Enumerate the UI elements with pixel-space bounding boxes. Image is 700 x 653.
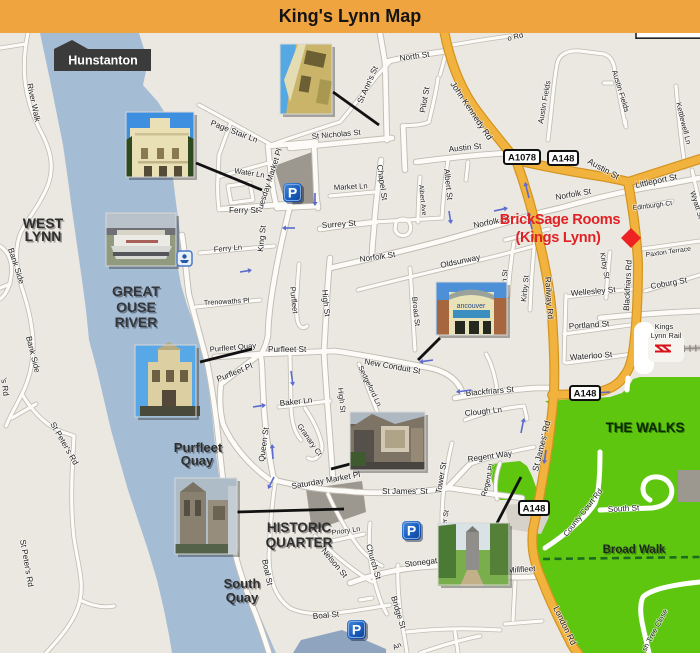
svg-text:'s Rd: 's Rd	[0, 377, 11, 397]
svg-text:QUARTER: QUARTER	[266, 535, 333, 550]
svg-text:Market Ln: Market Ln	[334, 181, 368, 192]
svg-text:Broad Walk: Broad Walk	[603, 544, 666, 556]
svg-text:St James' St: St James' St	[382, 487, 428, 496]
svg-text:Ferry St: Ferry St	[229, 206, 259, 215]
svg-text:Kings: Kings	[655, 322, 674, 331]
svg-text:BrickSage Rooms: BrickSage Rooms	[500, 212, 621, 228]
svg-text:RIVER: RIVER	[115, 314, 158, 330]
svg-text:A148: A148	[574, 388, 597, 399]
svg-text:P: P	[407, 523, 416, 539]
svg-text:LYNN: LYNN	[25, 228, 62, 244]
svg-text:P: P	[352, 622, 361, 638]
svg-text:South: South	[224, 576, 261, 591]
svg-text:Lynn Rail: Lynn Rail	[651, 331, 682, 340]
svg-text:GREAT: GREAT	[112, 283, 160, 299]
svg-text:OUSE: OUSE	[116, 299, 156, 315]
svg-text:P: P	[288, 185, 297, 201]
svg-text:ancouver: ancouver	[457, 303, 486, 310]
svg-text:HISTORIC: HISTORIC	[267, 520, 332, 535]
svg-text:South St: South St	[608, 503, 641, 514]
svg-text:(Kings Lynn): (Kings Lynn)	[515, 230, 600, 246]
svg-text:A148: A148	[552, 153, 575, 164]
svg-text:A1078: A1078	[508, 152, 536, 163]
svg-text:A148: A148	[523, 503, 546, 514]
svg-text:Quay: Quay	[226, 590, 259, 605]
svg-text:Quay: Quay	[181, 453, 214, 468]
svg-text:King's Lynn Map: King's Lynn Map	[279, 6, 422, 26]
svg-text:THE WALKS: THE WALKS	[606, 420, 685, 435]
svg-text:Purfleet St: Purfleet St	[268, 345, 307, 354]
svg-text:Hunstanton: Hunstanton	[68, 54, 137, 68]
